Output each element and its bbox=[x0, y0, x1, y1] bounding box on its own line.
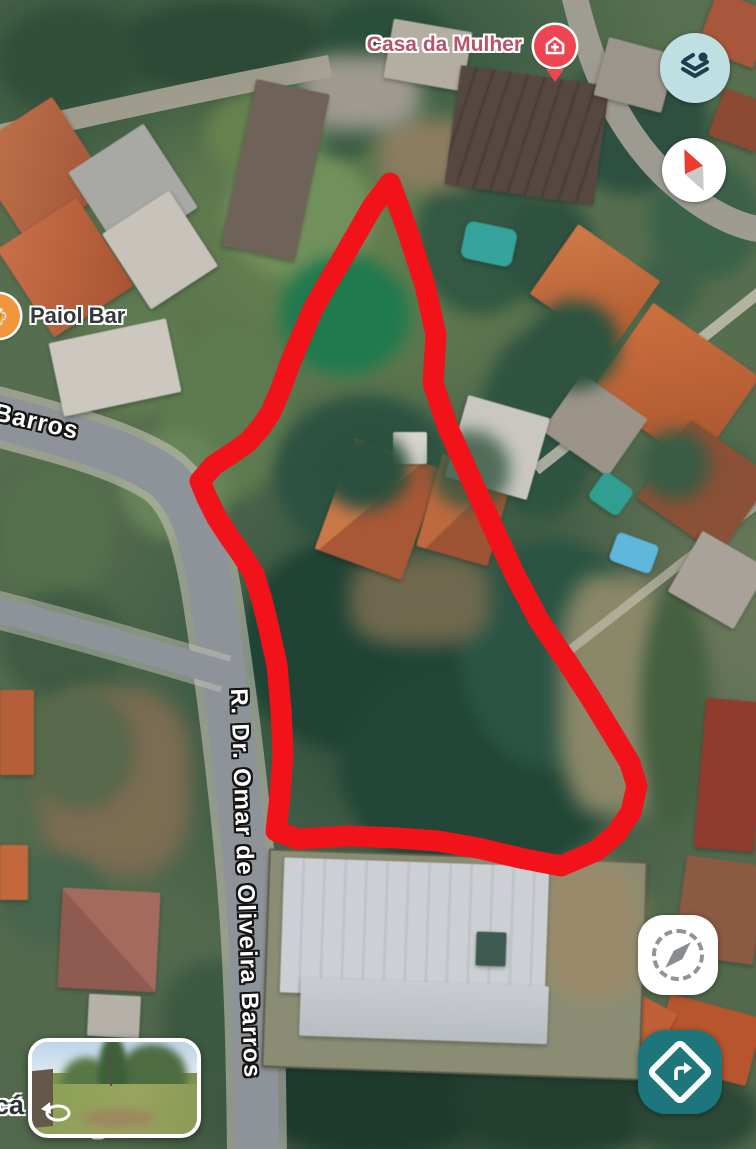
occluded-label-fragment: cá bbox=[0, 1090, 24, 1121]
compass-needle-icon bbox=[675, 145, 713, 195]
layers-button[interactable] bbox=[660, 33, 730, 103]
pin-pointer bbox=[546, 69, 564, 82]
turn-right-arrow bbox=[663, 1055, 697, 1089]
my-location-button[interactable] bbox=[638, 915, 718, 995]
street-view-preview[interactable] bbox=[28, 1038, 201, 1138]
layers-icon bbox=[675, 48, 715, 88]
location-needle bbox=[655, 932, 701, 978]
compass-button[interactable] bbox=[662, 138, 726, 202]
poi-label-paiol-bar[interactable]: Paiol Bar bbox=[30, 303, 125, 329]
satellite-map-view[interactable]: Barros R. Dr. Omar de Oliveira Barros cá… bbox=[0, 0, 756, 1149]
utility-pole bbox=[110, 1048, 112, 1087]
health-poi-pin[interactable] bbox=[534, 25, 576, 67]
pan-around-icon bbox=[40, 1100, 74, 1124]
poi-label-casa-da-mulher[interactable]: Casa da Mulher bbox=[322, 33, 522, 57]
directions-button[interactable] bbox=[638, 1030, 722, 1114]
health-house-cross-icon bbox=[542, 33, 568, 59]
